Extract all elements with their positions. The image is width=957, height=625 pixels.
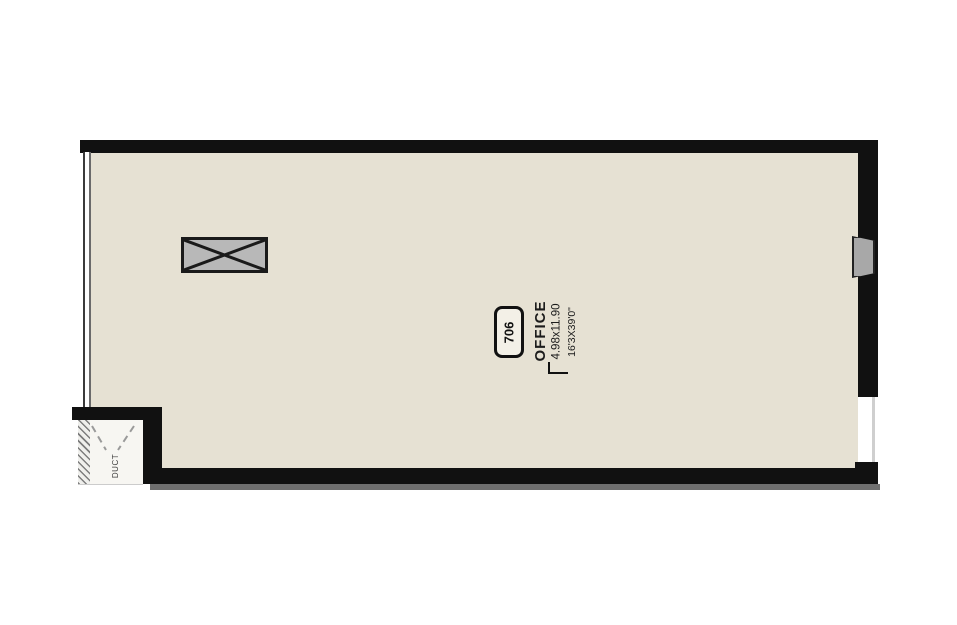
- wall-left-glazing: [83, 152, 91, 408]
- column-symbol: [181, 237, 268, 273]
- door-opening-jamb-line: [872, 397, 875, 468]
- room-floor: [89, 150, 858, 470]
- room-number-tag: 706: [494, 306, 524, 358]
- wall-panel: [852, 236, 875, 278]
- wall-notch-side: [143, 418, 162, 470]
- room-number-label: 706: [501, 321, 516, 343]
- duct-hatch-pattern: [78, 420, 90, 484]
- floor-plan-canvas: DUCT 706 OFFICE 4.98x11.90 16'3X39'0": [0, 0, 957, 625]
- wall-top: [80, 140, 878, 153]
- wall-bottom: [135, 468, 878, 484]
- column-x-icon: [184, 240, 265, 270]
- wall-bottom-shadow: [150, 484, 880, 490]
- dimension-tick-icon: [548, 362, 568, 374]
- room-name-label: OFFICE: [532, 266, 550, 396]
- duct-label: DUCT: [110, 446, 122, 486]
